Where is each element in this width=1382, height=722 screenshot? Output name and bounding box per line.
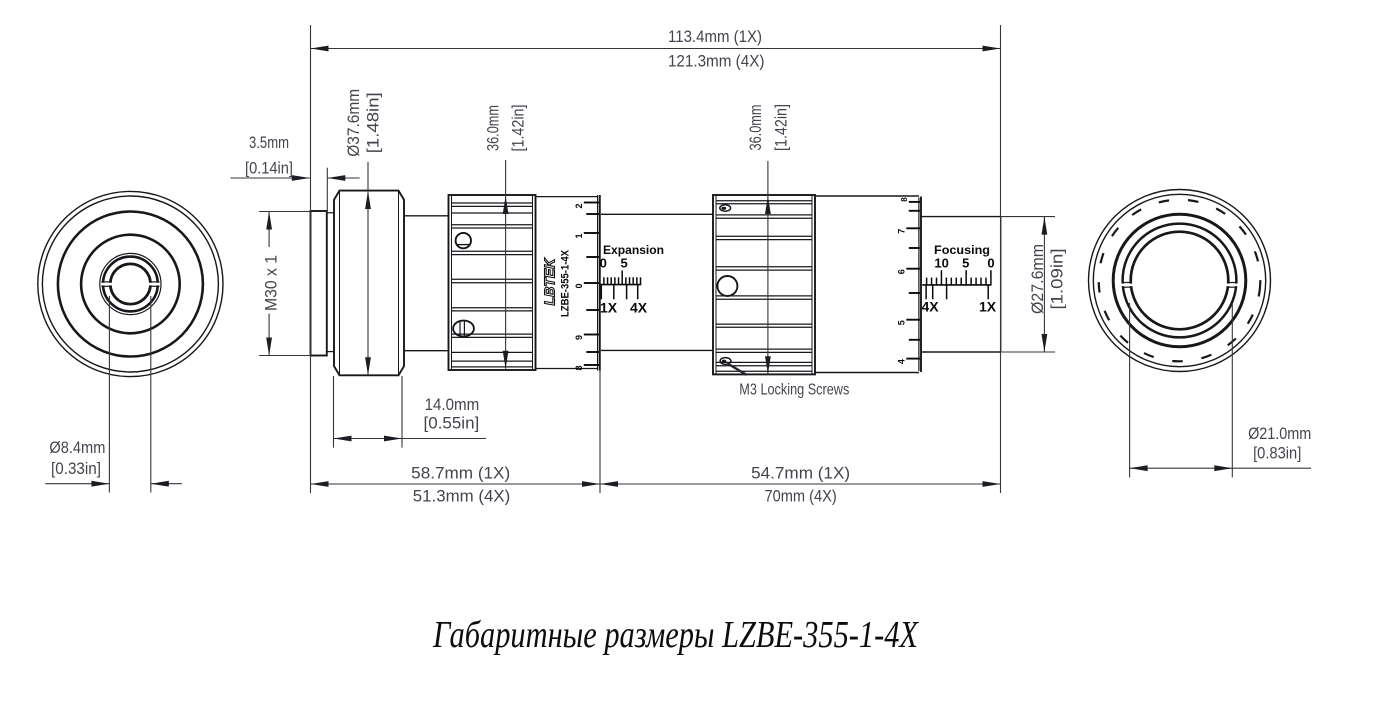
svg-text:8: 8 [574,365,584,370]
svg-text:Expansion: Expansion [603,243,664,257]
svg-text:[1.42in]: [1.42in] [509,105,528,152]
svg-text:Ø8.4mm: Ø8.4mm [49,438,105,457]
svg-text:4: 4 [897,359,907,364]
svg-text:[0.33in]: [0.33in] [51,459,101,478]
svg-text:7: 7 [897,229,907,234]
svg-text:1: 1 [574,233,584,238]
svg-text:0: 0 [600,255,607,270]
svg-text:0: 0 [574,283,584,288]
svg-text:1X: 1X [979,299,997,315]
svg-text:[1.42in]: [1.42in] [771,104,790,151]
svg-text:Ø27.6mm: Ø27.6mm [1028,244,1047,314]
svg-text:[0.55in]: [0.55in] [424,414,480,433]
svg-text:36.0mm: 36.0mm [746,105,765,151]
svg-text:51.3mm (4X): 51.3mm (4X) [413,487,510,506]
svg-text:LBTEK: LBTEK [543,257,559,305]
svg-text:70mm (4X): 70mm (4X) [764,487,836,506]
svg-text:54.7mm (1X): 54.7mm (1X) [751,464,850,483]
svg-text:1X: 1X [600,299,618,315]
svg-text:6: 6 [897,269,907,274]
svg-text:M30 x 1: M30 x 1 [262,255,281,311]
svg-text:58.7mm (1X): 58.7mm (1X) [411,464,510,483]
svg-text:2: 2 [574,203,584,208]
svg-text:Габаритные размеры LZBE-355-1-: Габаритные размеры LZBE-355-1-4X [432,614,919,656]
svg-text:14.0mm: 14.0mm [425,395,480,414]
svg-text:5: 5 [620,255,627,270]
svg-text:[1.48in]: [1.48in] [364,92,383,153]
svg-text:M3 Locking Screws: M3 Locking Screws [739,382,849,399]
svg-text:8: 8 [900,197,909,202]
svg-text:[0.14in]: [0.14in] [245,159,293,178]
svg-text:121.3mm (4X): 121.3mm (4X) [668,52,765,71]
svg-text:Ø21.0mm: Ø21.0mm [1248,424,1311,443]
svg-text:10: 10 [934,256,948,271]
svg-text:[1.09in]: [1.09in] [1048,249,1067,310]
svg-text:5: 5 [962,256,969,271]
svg-text:LZBE-355-1-4X: LZBE-355-1-4X [559,249,571,317]
svg-text:9: 9 [574,335,584,340]
svg-text:3.5mm: 3.5mm [249,133,289,152]
svg-text:36.0mm: 36.0mm [483,105,502,151]
svg-text:4X: 4X [921,299,939,315]
svg-text:4X: 4X [630,299,648,315]
svg-text:113.4mm (1X): 113.4mm (1X) [668,27,762,46]
svg-text:5: 5 [897,320,907,325]
svg-text:[0.83in]: [0.83in] [1253,444,1301,463]
svg-text:0: 0 [987,256,994,271]
svg-text:Ø37.6mm: Ø37.6mm [344,89,363,157]
